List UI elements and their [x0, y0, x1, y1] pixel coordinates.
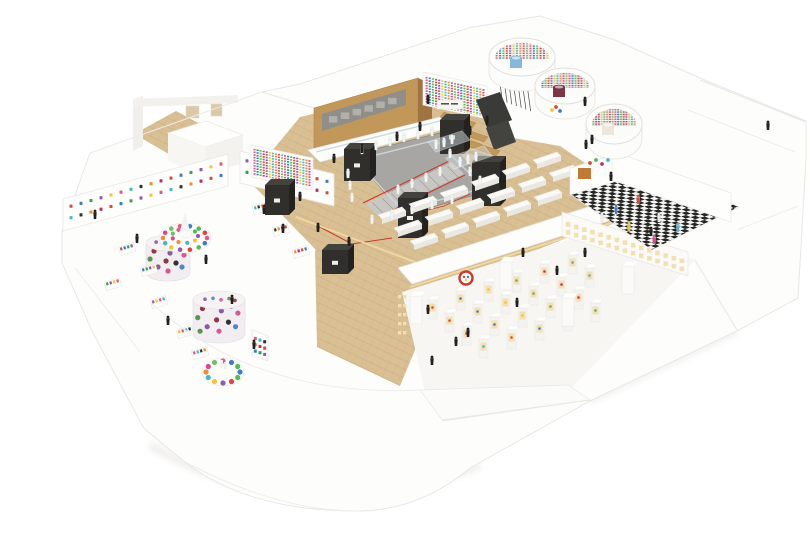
illegible-sign	[437, 100, 463, 109]
architectural-model-photograph	[0, 0, 810, 540]
round-graphic-sign	[460, 272, 473, 285]
orange-artwork	[578, 168, 591, 179]
photo-frame	[0, 0, 810, 540]
